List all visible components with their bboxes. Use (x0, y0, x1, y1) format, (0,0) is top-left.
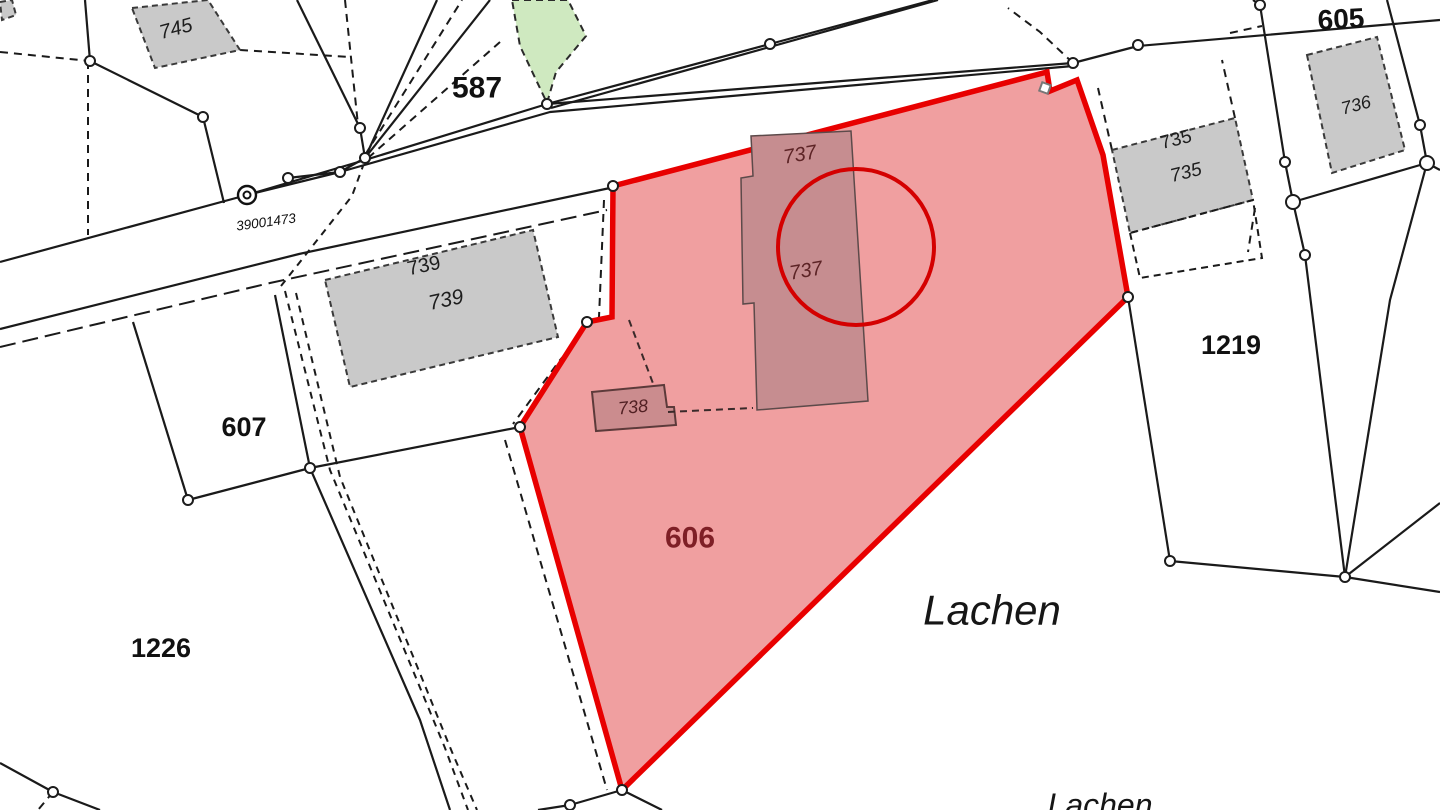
dashed-boundary-line-16 (1008, 8, 1073, 63)
survey-point-21 (1280, 157, 1290, 167)
place-label-lachen-17: Lachen (1048, 787, 1153, 810)
cadastral-map-svg: 7455873900147373973973773773873573573660… (0, 0, 1440, 810)
parcel-label-587: 587 (452, 72, 502, 105)
square-boundary-marker (1039, 82, 1051, 94)
survey-point-7 (765, 39, 775, 49)
survey-point-18 (1165, 556, 1175, 566)
survey-point-2 (355, 123, 365, 133)
cadastral-map-canvas: 7455873900147373973973773773873573573660… (0, 0, 1440, 810)
boundary-line-22 (1170, 561, 1440, 592)
boundary-line-9 (85, 0, 90, 61)
survey-point-3 (360, 153, 370, 163)
survey-point-24 (565, 800, 575, 810)
survey-point-23 (1415, 120, 1425, 130)
parcel-label-738: 738 (617, 395, 649, 418)
place-label-lachen-16: Lachen (923, 587, 1061, 634)
boundary-line-28 (1345, 163, 1427, 577)
boundary-line-23 (1305, 255, 1345, 577)
survey-point-12 (617, 785, 627, 795)
boundary-line-24 (1260, 5, 1305, 255)
survey-point-11 (1123, 292, 1133, 302)
boundary-line-21 (1128, 297, 1170, 561)
survey-point-16 (305, 463, 315, 473)
survey-point-10 (608, 181, 618, 191)
boundary-line-29 (1345, 503, 1440, 577)
survey-point-15 (183, 495, 193, 505)
dashed-boundary-line-13 (1222, 60, 1235, 118)
dashed-boundary-line-15 (1248, 208, 1255, 252)
survey-point-4 (335, 167, 345, 177)
parcel-label-39001473: 39001473 (235, 210, 297, 233)
parcel-label-606: 606 (665, 522, 715, 555)
boundary-line-4 (551, 0, 938, 108)
control-point-inner-circle (244, 192, 251, 199)
highlighted-parcel-layer (520, 72, 1128, 790)
survey-point-14 (582, 317, 592, 327)
dashed-boundary-line-2 (240, 50, 350, 57)
survey-point-25 (1286, 195, 1300, 209)
dashed-boundary-line-4 (365, 0, 462, 155)
parcel-label-605: 605 (1317, 2, 1365, 35)
parcel-label-1226: 1226 (131, 633, 191, 663)
dashed-boundary-line-3 (345, 0, 358, 125)
survey-point-8 (1068, 58, 1078, 68)
parcel-label-607: 607 (221, 412, 266, 442)
dashed-boundary-line-14 (1230, 26, 1262, 33)
survey-point-6 (542, 99, 552, 109)
boundary-line-10 (90, 61, 224, 203)
survey-point-5 (283, 173, 293, 183)
boundary-line-18 (0, 763, 100, 810)
boundary-line-15 (133, 322, 188, 500)
survey-point-13 (515, 422, 525, 432)
building-fragment-topleft (0, 0, 16, 20)
boundary-line-20 (622, 790, 662, 810)
survey-point-22 (1300, 250, 1310, 260)
boundary-line-25 (1293, 163, 1427, 202)
survey-point-17 (48, 787, 58, 797)
green-area (512, 0, 586, 103)
boundary-line-1 (1073, 20, 1440, 63)
boundary-line-12 (247, 172, 340, 195)
survey-point-9 (1133, 40, 1143, 50)
survey-point-19 (1340, 572, 1350, 582)
survey-point-0 (85, 56, 95, 66)
boundary-line-5 (297, 0, 360, 128)
survey-point-26 (1420, 156, 1434, 170)
boundary-line-19 (538, 790, 622, 810)
survey-point-20 (1255, 0, 1265, 10)
green-area-layer (512, 0, 586, 103)
dashed-boundary-line-0 (0, 52, 90, 61)
parcel-label-1219: 1219 (1201, 330, 1261, 360)
survey-point-1 (198, 112, 208, 122)
